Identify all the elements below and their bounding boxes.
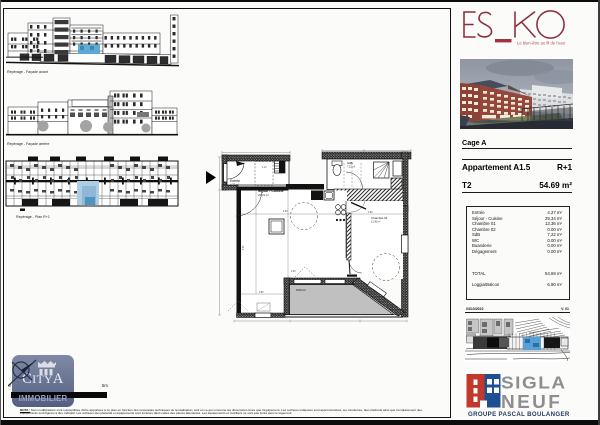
- svg-text:7.22 m²: 7.22 m²: [347, 165, 355, 168]
- svg-text:Le bien-être au fil de l'eau: Le bien-être au fil de l'eau: [517, 41, 566, 46]
- svg-text:NEUF: NEUF: [501, 392, 562, 412]
- svg-text:2.60: 2.60: [291, 271, 296, 273]
- svg-text:5.95: 5.95: [243, 245, 245, 250]
- svg-text:6.90 m²: 6.90 m²: [296, 288, 306, 292]
- svg-text:1.10: 1.10: [262, 167, 267, 169]
- svg-text:2.85: 2.85: [259, 292, 264, 294]
- svg-text:Entrée: Entrée: [230, 179, 240, 183]
- svg-text:4.27 m²: 4.27 m²: [230, 183, 239, 187]
- svg-text:2.98: 2.98: [368, 212, 373, 214]
- svg-text:Chambre 01: Chambre 01: [371, 216, 388, 220]
- svg-text:13.36 m²: 13.36 m²: [371, 221, 381, 224]
- svg-text:SIGLA: SIGLA: [501, 372, 567, 392]
- svg-text:4.50: 4.50: [283, 211, 288, 213]
- svg-text:GROUPE PASCAL BOULANGER: GROUPE PASCAL BOULANGER: [468, 411, 570, 418]
- svg-text:29.34 m²: 29.34 m²: [258, 193, 269, 197]
